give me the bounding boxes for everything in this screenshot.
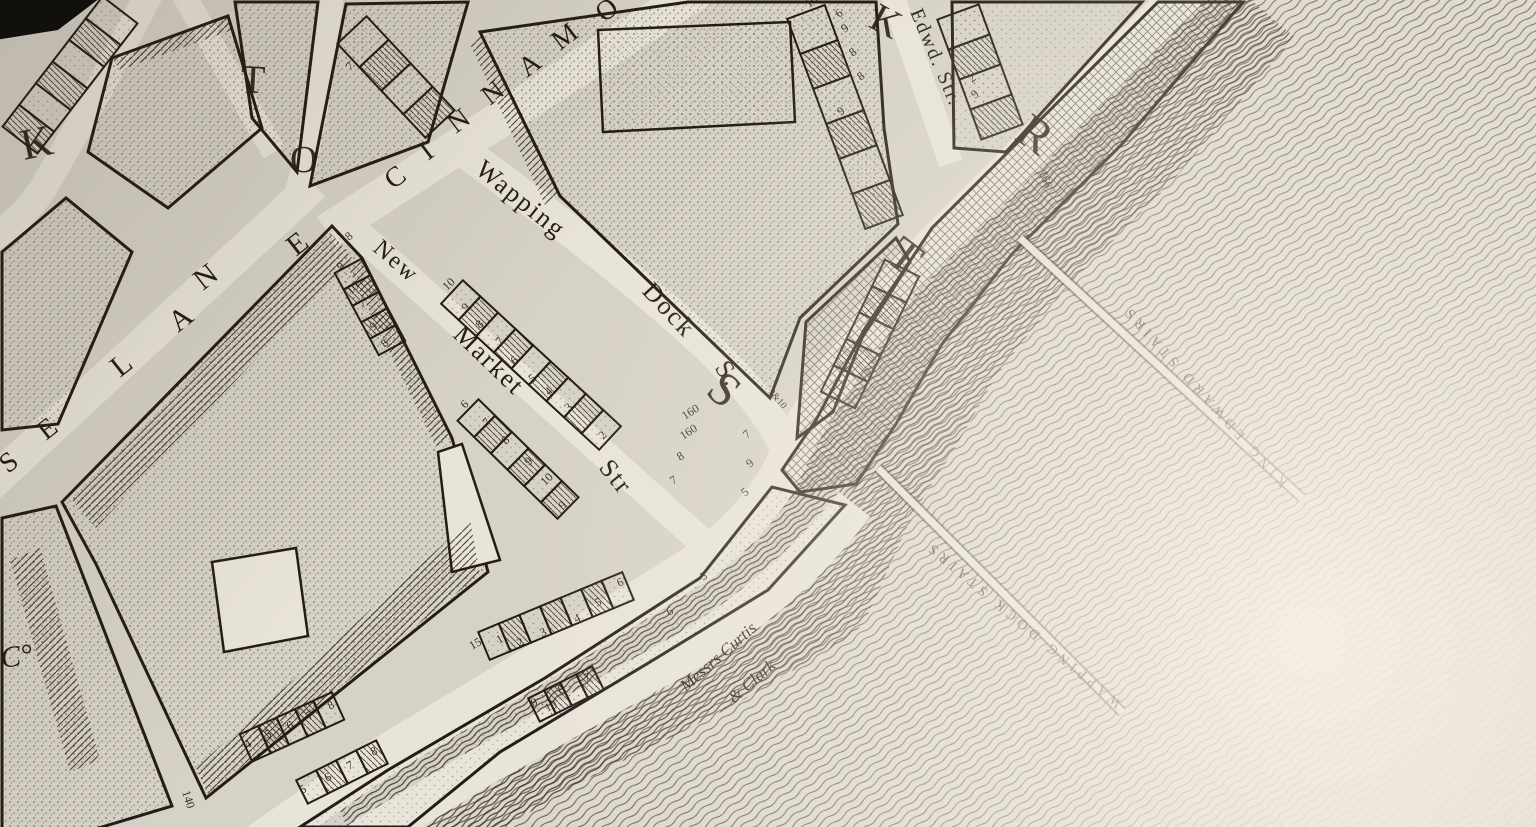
lighting-effects	[0, 0, 1536, 827]
corner-shadow	[0, 0, 1536, 827]
engraved-map: CINNAMOWappingDockS.NewMarketStrSELANEEd…	[0, 0, 1536, 827]
map-canvas: CINNAMOWappingDockS.NewMarketStrSELANEEd…	[0, 0, 1536, 827]
